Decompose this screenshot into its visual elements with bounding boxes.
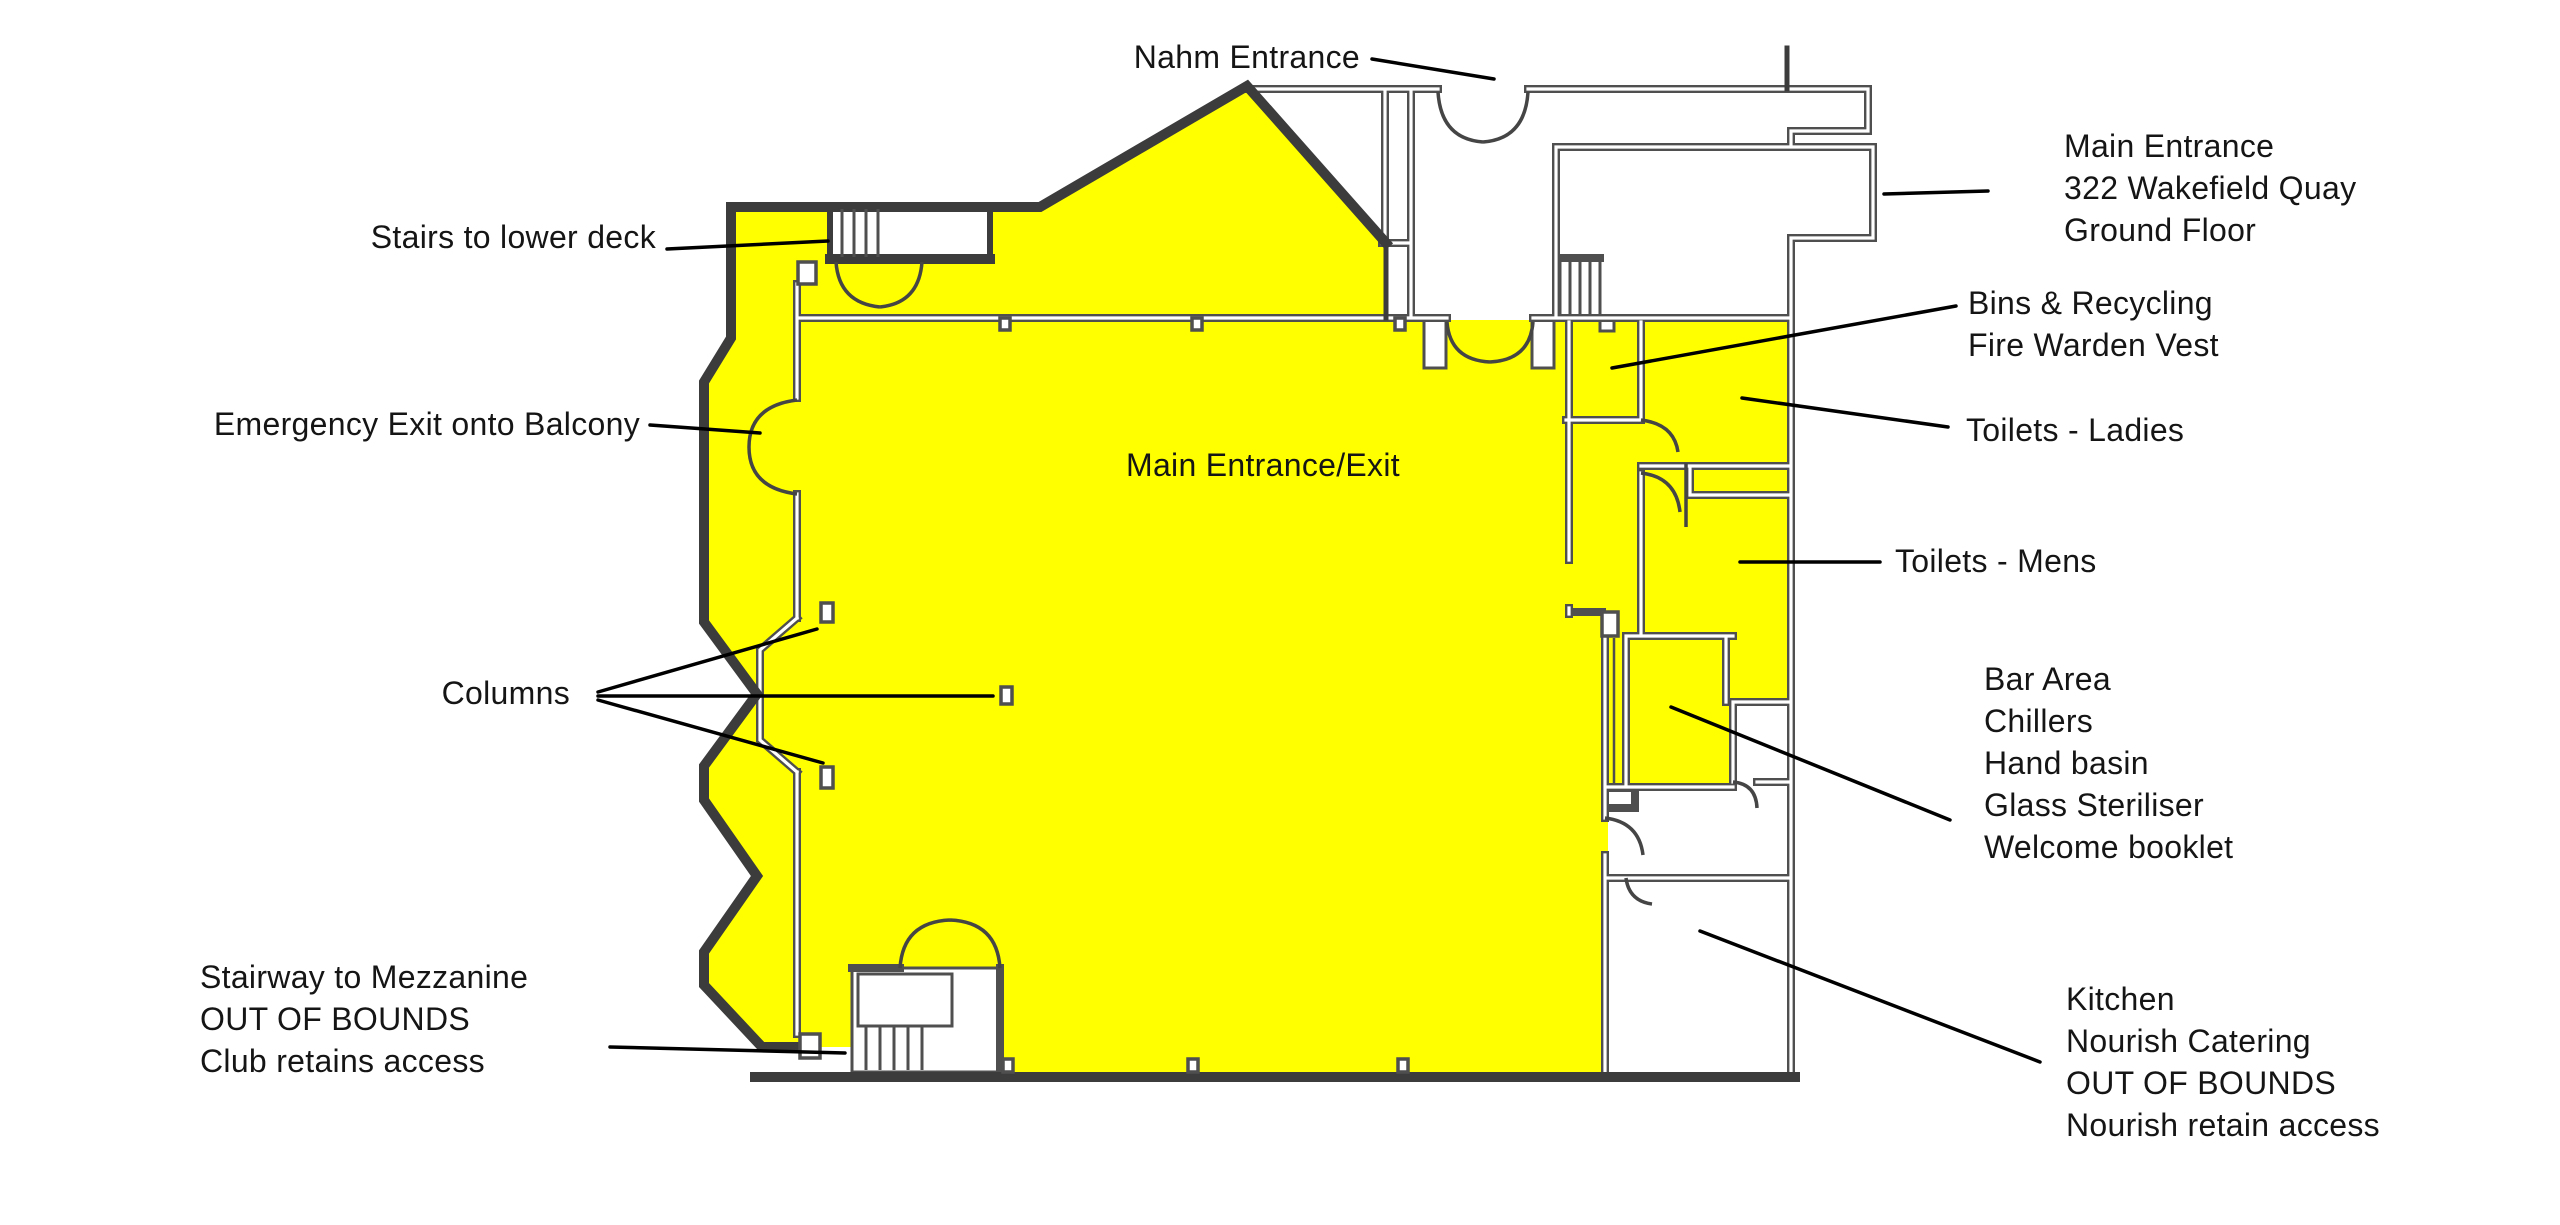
label-mezzanine-line1: Stairway to Mezzanine	[200, 956, 528, 998]
label-main-entrance-line2: 322 Wakefield Quay	[2064, 167, 2356, 209]
label-bins-recycling: Bins & Recycling Fire Warden Vest	[1968, 282, 2219, 366]
label-bar-line3: Hand basin	[1984, 742, 2233, 784]
leader-main-entrance	[1884, 191, 1988, 194]
label-columns: Columns	[442, 672, 570, 714]
label-bar-line5: Welcome booklet	[1984, 826, 2233, 868]
column-mid-floor	[1001, 687, 1012, 704]
label-kitchen-line1: Kitchen	[2066, 978, 2380, 1020]
label-stairs-lower-deck: Stairs to lower deck	[371, 216, 656, 258]
label-kitchen: Kitchen Nourish Catering OUT OF BOUNDS N…	[2066, 978, 2380, 1146]
column-bottom-left	[800, 1034, 820, 1058]
pilaster-top-3	[1395, 318, 1405, 330]
label-mezzanine-line2: OUT OF BOUNDS	[200, 998, 528, 1040]
door-leaf-left	[1424, 318, 1446, 368]
pilaster-top-1	[1000, 318, 1010, 330]
label-emergency-exit: Emergency Exit onto Balcony	[214, 403, 640, 445]
label-kitchen-line4: Nourish retain access	[2066, 1104, 2380, 1146]
pilaster-bottom-1	[1003, 1059, 1013, 1072]
floor-plan-page: Nahm Entrance Stairs to lower deck Main …	[0, 0, 2560, 1225]
label-main-entrance-line3: Ground Floor	[2064, 209, 2356, 251]
pilaster-bottom-3	[1398, 1059, 1408, 1072]
leader-nahm-entrance	[1372, 59, 1494, 79]
label-nahm-entrance: Nahm Entrance	[1134, 36, 1360, 78]
label-main-entrance-address: Main Entrance 322 Wakefield Quay Ground …	[2064, 125, 2356, 251]
label-toilets-ladies: Toilets - Ladies	[1966, 409, 2184, 451]
label-bins-line1: Bins & Recycling	[1968, 282, 2219, 324]
main-entrance-stairs-treads	[1560, 258, 1600, 314]
label-mezzanine-line3: Club retains access	[200, 1040, 528, 1082]
label-kitchen-line2: Nourish Catering	[2066, 1020, 2380, 1062]
label-bar-line4: Glass Steriliser	[1984, 784, 2233, 826]
label-bins-line2: Fire Warden Vest	[1968, 324, 2219, 366]
label-kitchen-line3: OUT OF BOUNDS	[2066, 1062, 2380, 1104]
column-bar-corner	[1602, 612, 1618, 636]
label-bar-area: Bar Area Chillers Hand basin Glass Steri…	[1984, 658, 2233, 868]
pilaster-top-2	[1192, 318, 1202, 330]
column-aisle-lower	[821, 767, 833, 788]
label-main-entrance-exit: Main Entrance/Exit	[1126, 444, 1400, 486]
label-main-entrance-line1: Main Entrance	[2064, 125, 2356, 167]
pilaster-bottom-2	[1188, 1059, 1198, 1072]
column-aisle-upper	[821, 603, 833, 622]
leader-kitchen	[1700, 931, 2040, 1062]
label-stairway-mezzanine: Stairway to Mezzanine OUT OF BOUNDS Club…	[200, 956, 528, 1082]
label-bar-line2: Chillers	[1984, 700, 2233, 742]
nahm-entrance-door	[1438, 92, 1528, 142]
label-toilets-mens: Toilets - Mens	[1895, 540, 2097, 582]
column-top-left	[798, 262, 816, 284]
door-leaf-right	[1532, 318, 1554, 368]
mezzanine-stair-landing	[858, 974, 952, 1026]
label-bar-line1: Bar Area	[1984, 658, 2233, 700]
back-corridor-door	[1605, 818, 1643, 855]
